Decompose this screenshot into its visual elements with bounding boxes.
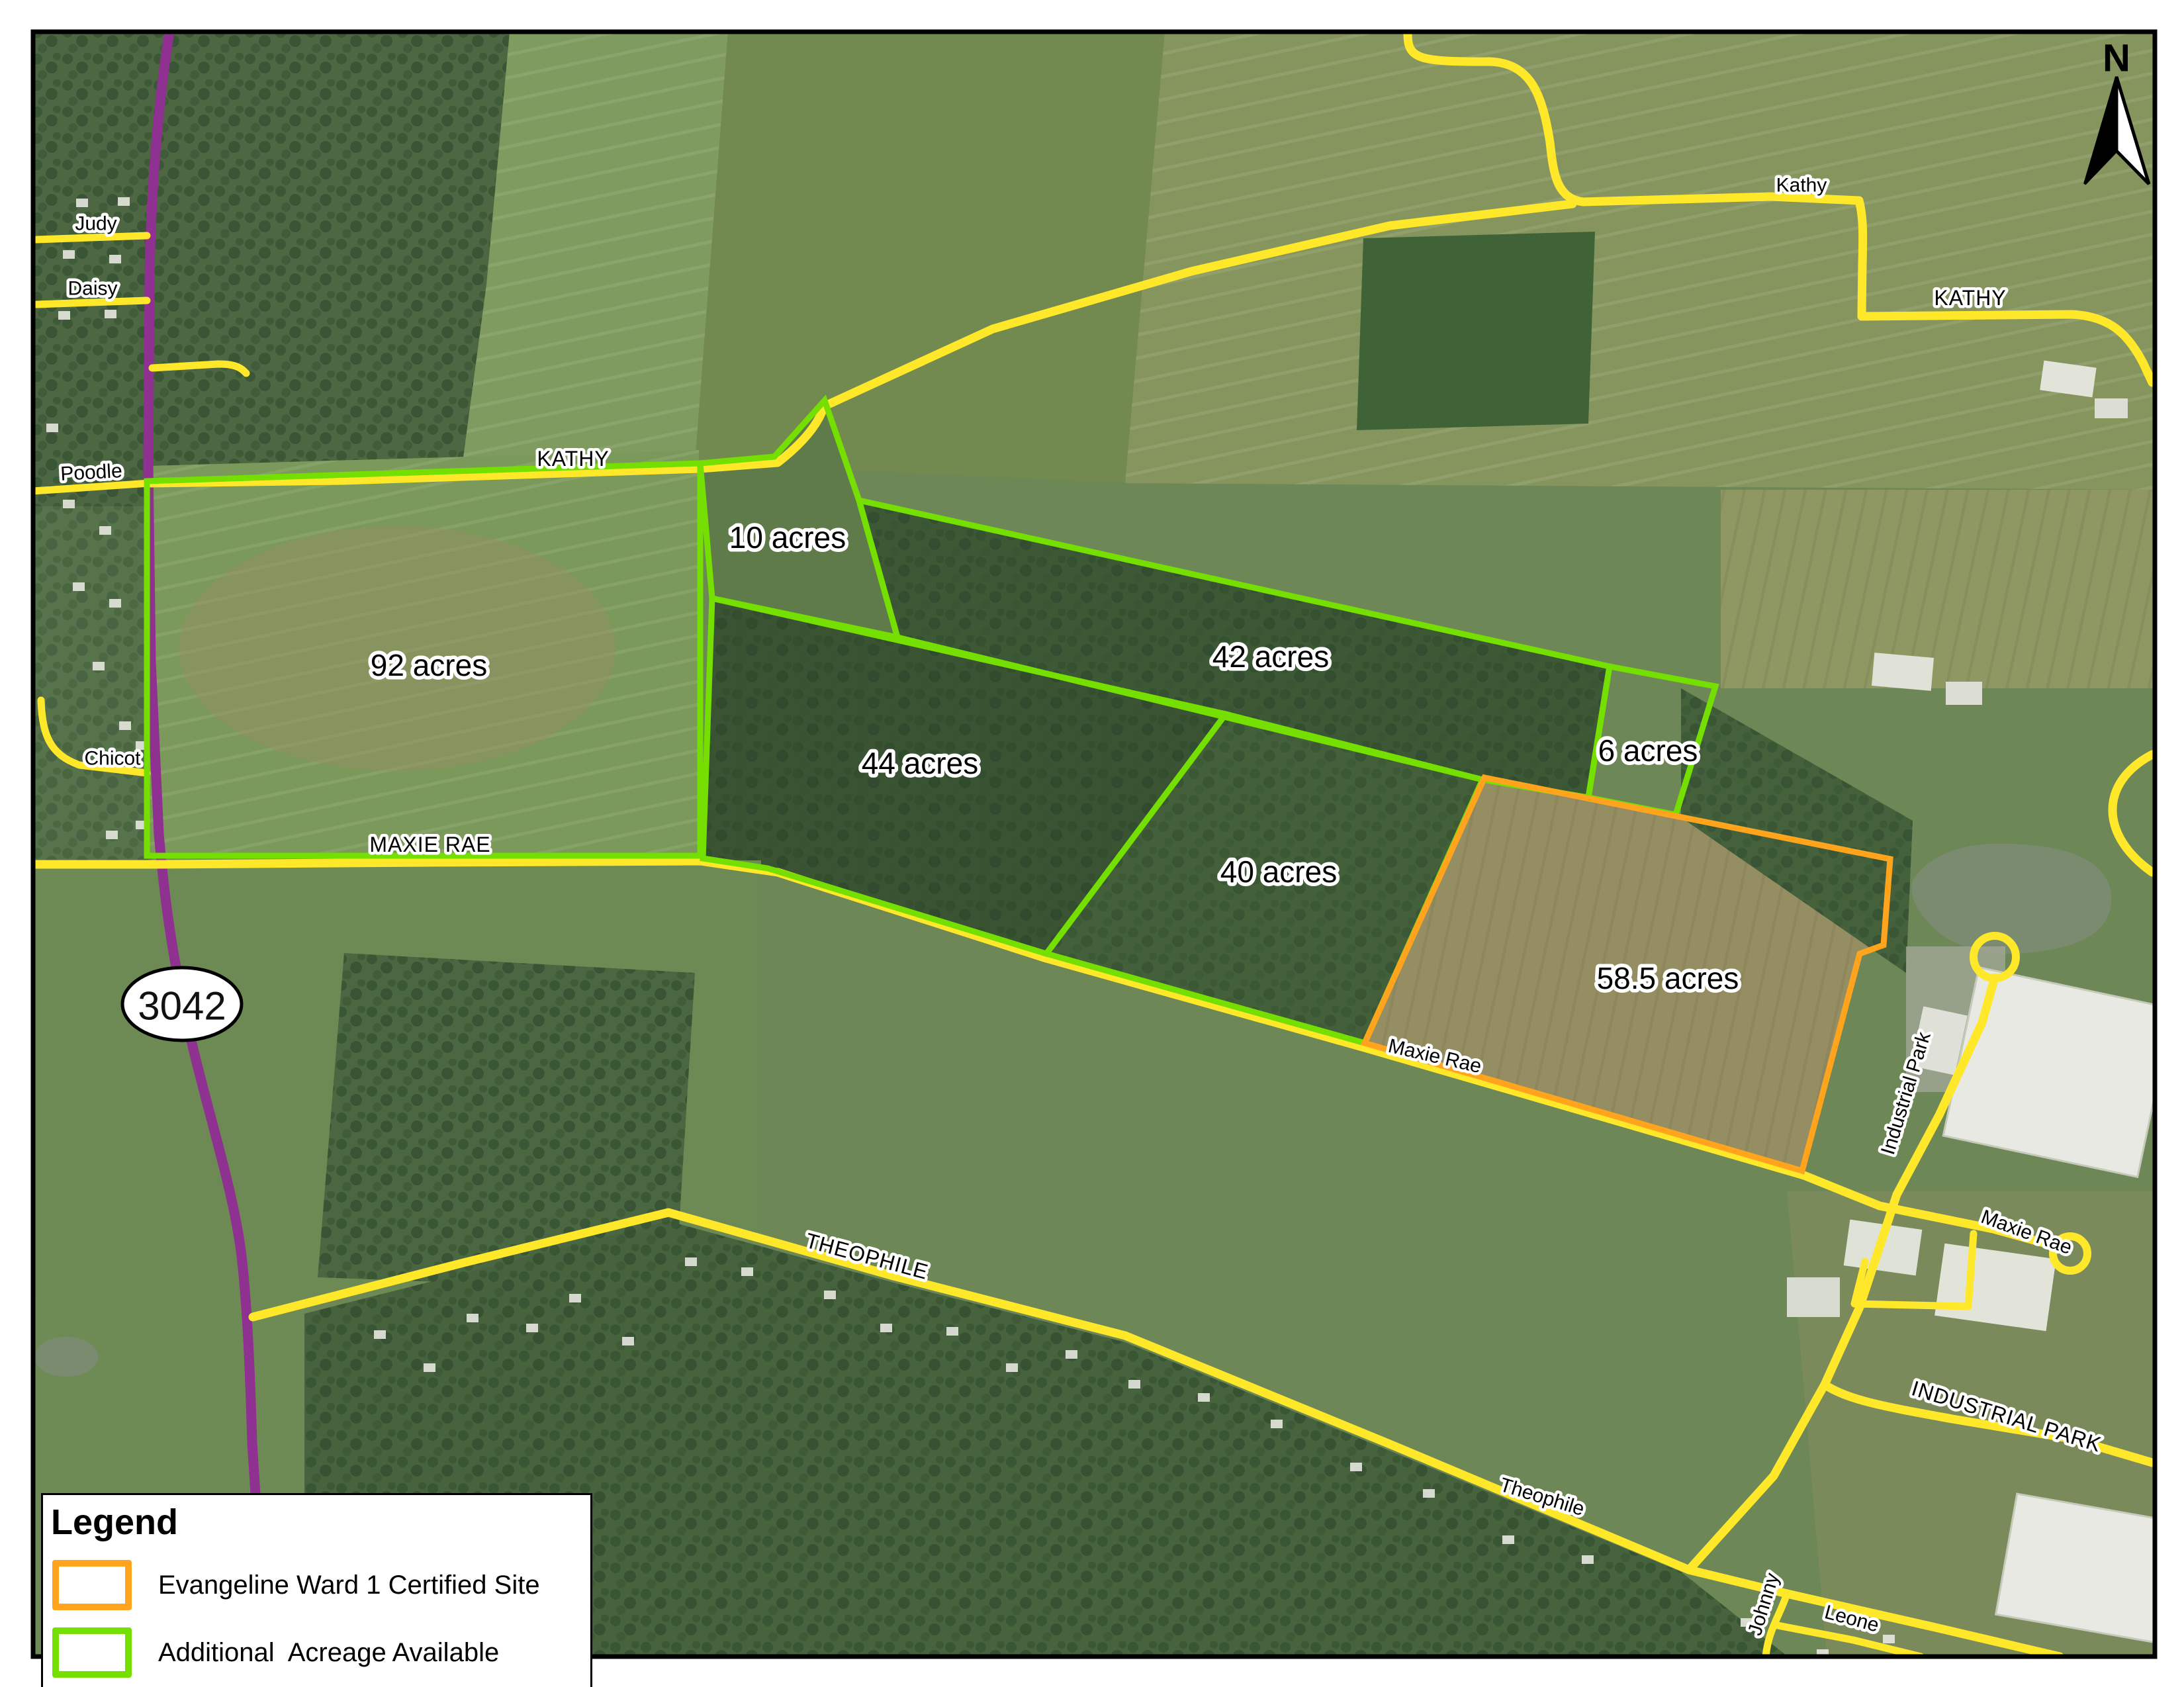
road-label-judy: Judy bbox=[75, 213, 116, 235]
road-label-kathy-ne: Kathy bbox=[1776, 175, 1827, 197]
route-shield-text: 3042 bbox=[138, 984, 226, 1028]
house bbox=[1883, 1635, 1895, 1643]
house bbox=[374, 1330, 386, 1339]
house bbox=[109, 255, 121, 263]
house bbox=[741, 1267, 753, 1276]
map-page: 92 acres 10 acres 42 acres 44 acres 6 ac… bbox=[0, 0, 2184, 1687]
road-label-kathy-west: KATHY bbox=[537, 447, 609, 471]
house bbox=[622, 1337, 634, 1345]
route-shield-3042: 3042 bbox=[122, 968, 242, 1040]
road-daisy bbox=[36, 300, 147, 304]
house bbox=[1423, 1489, 1435, 1498]
certified-site-swatch bbox=[52, 1560, 132, 1610]
house bbox=[467, 1314, 478, 1322]
house bbox=[569, 1294, 581, 1302]
aerial-map: 92 acres 10 acres 42 acres 44 acres 6 ac… bbox=[0, 0, 2184, 1687]
acre-label-44: 44 acres bbox=[862, 746, 978, 780]
house bbox=[1066, 1350, 1077, 1359]
house bbox=[76, 199, 88, 207]
house bbox=[1271, 1420, 1283, 1428]
house bbox=[93, 662, 105, 670]
legend-item-certified: Evangeline Ward 1 Certified Site bbox=[52, 1560, 590, 1610]
house bbox=[58, 311, 70, 320]
acre-label-40: 40 acres bbox=[1220, 854, 1337, 889]
house bbox=[1350, 1463, 1362, 1471]
road-judy bbox=[36, 236, 147, 240]
house bbox=[1198, 1393, 1210, 1402]
road-label-daisy: Daisy bbox=[68, 278, 117, 300]
house bbox=[63, 500, 75, 508]
legend-item-label: Additional Acreage Available bbox=[158, 1638, 499, 1668]
house bbox=[1128, 1380, 1140, 1389]
legend-item-label: Evangeline Ward 1 Certified Site bbox=[158, 1571, 540, 1600]
legend-item-available: Additional Acreage Available bbox=[52, 1627, 590, 1678]
house bbox=[946, 1327, 958, 1336]
house bbox=[63, 250, 75, 259]
house bbox=[526, 1324, 538, 1332]
road-label-kathy-east: KATHY bbox=[1934, 286, 2006, 310]
house bbox=[1582, 1555, 1594, 1564]
house bbox=[109, 599, 121, 608]
legend: Legend Evangeline Ward 1 Certified Site … bbox=[41, 1493, 592, 1687]
house bbox=[118, 197, 130, 206]
house bbox=[824, 1291, 836, 1299]
acre-label-10: 10 acres bbox=[729, 520, 846, 555]
house bbox=[46, 424, 58, 432]
house bbox=[119, 721, 131, 730]
road-label-chicot: Chicot bbox=[84, 748, 141, 770]
house bbox=[685, 1257, 697, 1266]
house bbox=[99, 526, 111, 535]
road-label-maxie-rae-west: MAXIE RAE bbox=[369, 833, 490, 856]
house bbox=[880, 1324, 892, 1332]
house bbox=[1006, 1363, 1018, 1372]
acre-label-58-5: 58.5 acres bbox=[1597, 961, 1739, 995]
acre-label-42: 42 acres bbox=[1212, 639, 1329, 674]
legend-title: Legend bbox=[51, 1502, 590, 1543]
north-arrow-n: N bbox=[2103, 37, 2130, 80]
available-acreage-swatch bbox=[52, 1627, 132, 1678]
house bbox=[1502, 1535, 1514, 1544]
house bbox=[105, 310, 116, 318]
house bbox=[73, 582, 85, 591]
house bbox=[424, 1363, 435, 1372]
acre-label-6: 6 acres bbox=[1598, 733, 1698, 768]
house bbox=[106, 831, 118, 839]
acre-label-92: 92 acres bbox=[371, 648, 487, 682]
road-label-poodle: Poodle bbox=[60, 460, 122, 485]
